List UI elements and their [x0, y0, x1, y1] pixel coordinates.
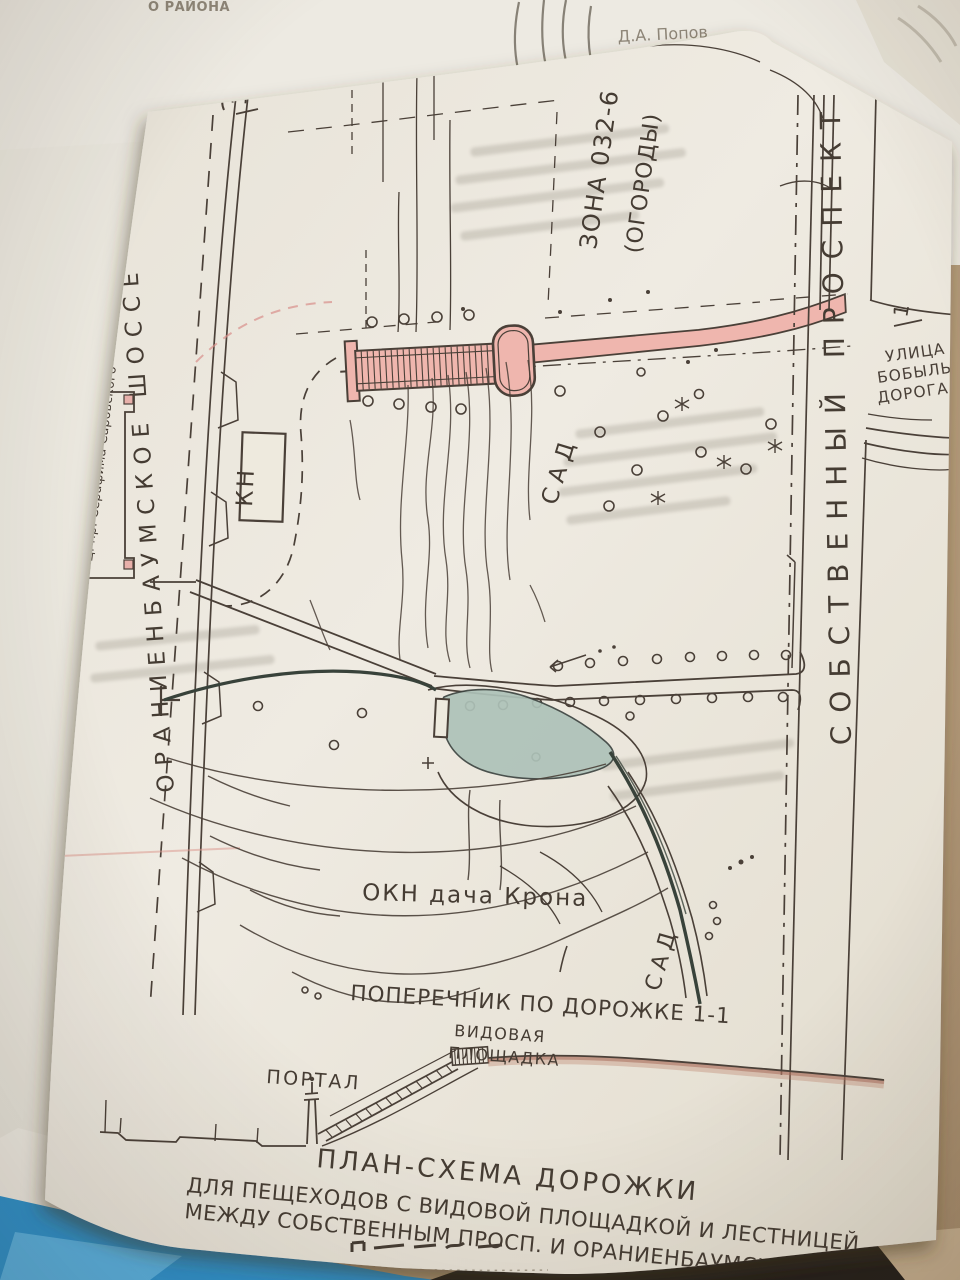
photo-of-hand-drawn-plan: О РАЙОНА Д.А. Попов: [0, 0, 960, 1280]
photo-vignette: [0, 0, 960, 1280]
plan-photo-canvas: О РАЙОНА Д.А. Попов: [0, 0, 960, 1280]
